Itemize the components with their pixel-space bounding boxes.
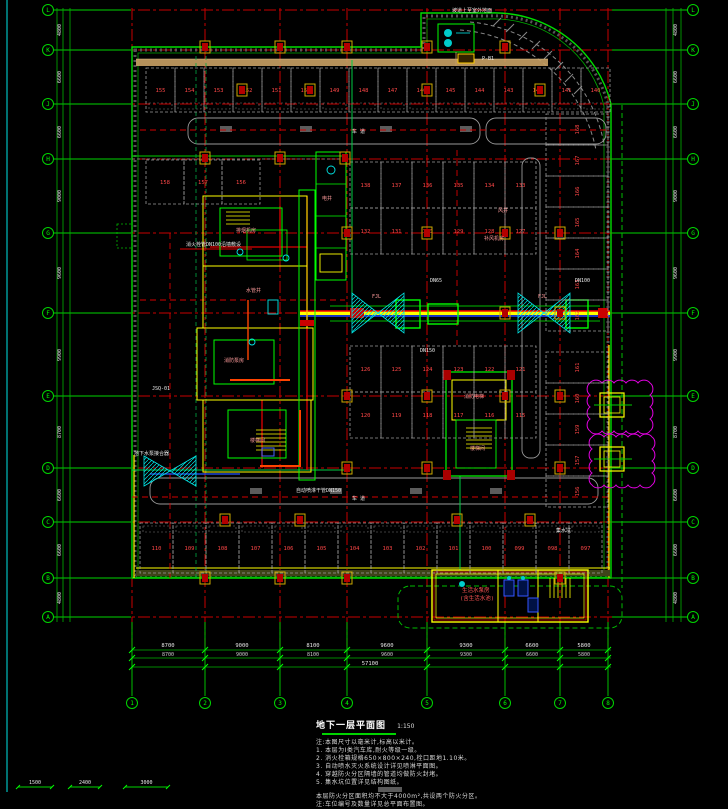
- label-room: FJL: [538, 294, 547, 300]
- column-core: [424, 229, 430, 237]
- grid-bubble-label: E: [46, 393, 50, 400]
- dim-text-side-right: 6600: [673, 71, 679, 83]
- notes-list: 注:本图尺寸以毫米计,标高以米计。1. 本层为Ⅰ类汽车库,耐火等级一级。2. 消…: [316, 739, 576, 787]
- column-core: [557, 229, 563, 237]
- grid-bubble-label: F: [46, 310, 50, 317]
- grid-bubble-label: A: [46, 614, 50, 621]
- column-core: [527, 516, 533, 524]
- column-core: [277, 574, 283, 582]
- parking-stall-number: 157: [198, 180, 208, 186]
- dim-text-bottom: 9000: [235, 643, 248, 649]
- label-room: 电井: [322, 195, 332, 202]
- parking-stall-number: 129: [454, 229, 464, 235]
- dim-text-side-right: 4800: [673, 592, 679, 604]
- parking-stall-number: 106: [284, 546, 294, 552]
- stall-sub-mark: [440, 526, 467, 532]
- dim-text-bottom-sub: 8100: [307, 652, 319, 658]
- grid-bubble-label: D: [46, 465, 50, 472]
- grid-bubble-label: L: [46, 7, 50, 14]
- column-core: [202, 43, 208, 51]
- dim-text-side-right: 8700: [673, 426, 679, 438]
- grid-bubble-label: J: [46, 101, 50, 108]
- corner-dim-text: 2400: [79, 780, 91, 786]
- parking-stall-number: 166: [575, 187, 581, 197]
- column-core: [277, 154, 283, 162]
- grid-bubble-label: B: [691, 575, 695, 582]
- core-right: [443, 370, 515, 480]
- grid-bubble-label: 8: [606, 700, 610, 707]
- label-white: DN100: [575, 278, 590, 284]
- corner-dim-text: 3000: [140, 780, 152, 786]
- dim-text-bottom: 9600: [380, 643, 393, 649]
- parking-stall-number: 158: [160, 180, 170, 186]
- parking-stall-number: 159: [575, 425, 581, 435]
- parking-stall-number: 101: [449, 546, 459, 552]
- label-white: 集水坑: [556, 527, 571, 534]
- label-room: 楼梯间: [470, 445, 485, 452]
- parking-stall-number: 105: [317, 546, 327, 552]
- note-line: 2. 消火栓箱规格650×800×240,栓口距地1.10米。: [316, 755, 576, 763]
- parking-stall-number: 134: [485, 183, 496, 189]
- core-left-fixtures: [237, 249, 289, 345]
- grid-bubble-label: C: [691, 519, 695, 526]
- drawing-scale: 1:150: [397, 723, 414, 730]
- grid-bubble-label: E: [691, 393, 695, 400]
- parking-stall-number: 133: [516, 183, 526, 189]
- column-core: [557, 309, 563, 317]
- column-core: [344, 43, 350, 51]
- parking-stall-number: 127: [516, 229, 526, 235]
- dim-text-side-left: 8700: [57, 426, 63, 438]
- dim-text-bottom: 5800: [577, 643, 590, 649]
- column-core: [424, 43, 430, 51]
- parking-stall-number: 107: [251, 546, 261, 552]
- column-core: [202, 154, 208, 162]
- parking-stall-number: 116: [485, 413, 495, 419]
- note-line-secondary: 本层防火分区面积均不大于4000m²,共设两个防火分区。: [316, 793, 576, 801]
- column-core: [344, 392, 350, 400]
- column-core: [344, 574, 350, 582]
- grid-bubble-label: A: [691, 614, 695, 621]
- label-room: 排烟机房: [236, 227, 256, 234]
- parking-stall-number: 145: [446, 88, 456, 94]
- parking-stall-number: 162: [575, 311, 581, 321]
- parking-stall-number: 147: [388, 88, 398, 94]
- parking-stall-number: 122: [485, 367, 495, 373]
- label-room: 风井: [498, 207, 508, 214]
- label-white: JSQ-01: [152, 386, 170, 392]
- parking-stall-number: 103: [383, 546, 393, 552]
- parking-stall-number: 124: [423, 367, 434, 373]
- column-core: [502, 392, 508, 400]
- parking-stall-number: 148: [359, 88, 369, 94]
- label-white: DN150: [420, 348, 435, 354]
- dim-text-bottom: 8100: [306, 643, 319, 649]
- stall-sub-mark: [308, 526, 335, 532]
- label-room: FJL: [372, 294, 381, 300]
- column-core: [502, 309, 508, 317]
- label-room: 消防电梯: [464, 393, 484, 400]
- dim-text-side-left: 6600: [57, 489, 63, 501]
- dim-text-side-right: 4800: [673, 24, 679, 36]
- core-top-middle: [316, 152, 346, 280]
- column-core: [454, 516, 460, 524]
- parking-stall-number: 149: [330, 88, 340, 94]
- dim-text-side-right: 6600: [673, 126, 679, 138]
- parking-stall-number: 164: [575, 248, 581, 259]
- dim-text-bottom-sub: 9300: [460, 652, 472, 658]
- label-white: 消火栓管DN100沿墙敷设: [186, 241, 241, 248]
- label-white: 坡道上至室外地面: [452, 7, 492, 14]
- parking-stall-number: 123: [454, 367, 464, 373]
- dim-text-side-left: 4800: [57, 592, 63, 604]
- note-line: 4. 穿越防火分区隔墙的管道均做防火封堵。: [316, 771, 576, 779]
- column-core: [297, 516, 303, 524]
- parking-stall-number: 132: [361, 229, 371, 235]
- grid-bubble-label: G: [46, 230, 50, 237]
- grid-bubble-label: K: [46, 47, 50, 54]
- parking-stall-number: 131: [392, 229, 402, 235]
- column-core: [307, 86, 313, 94]
- note-line: 5. 集水坑位置详见结构图纸。: [316, 779, 576, 787]
- parking-stall-number: 140: [591, 88, 601, 94]
- grid-bubble-label: J: [691, 101, 695, 108]
- parking-stall-number: 099: [515, 546, 525, 552]
- dim-text-side-right: 6600: [673, 489, 679, 501]
- column-core: [424, 86, 430, 94]
- grid-bubble-label: 1: [130, 700, 134, 707]
- grid-bubble-label: K: [691, 47, 695, 54]
- column-core: [344, 229, 350, 237]
- dim-text-bottom-sub: 9000: [236, 652, 248, 658]
- grid-bubble-label: G: [691, 230, 695, 237]
- grid-bubble-label: C: [46, 519, 50, 526]
- note-line: 注:本图尺寸以毫米计,标高以米计。: [316, 739, 576, 747]
- parking-stall-number: 097: [581, 546, 591, 552]
- note-line: 1. 本层为Ⅰ类汽车库,耐火等级一级。: [316, 747, 576, 755]
- label-annex: (含生活水池): [460, 594, 494, 602]
- parking-stall-number: 115: [516, 413, 526, 419]
- grid-bubble-label: 5: [425, 700, 429, 707]
- column-core: [277, 43, 283, 51]
- parking-stall-number: 156: [236, 180, 246, 186]
- dim-text-bottom-sub: 9600: [381, 652, 393, 658]
- note-line: 3. 自动喷水灭火系统设计详见喷淋平面图。: [316, 763, 576, 771]
- parking-stall-number: 109: [185, 546, 195, 552]
- column-core: [342, 154, 348, 162]
- stall-sub-mark: [473, 526, 500, 532]
- parking-stall-number: 154: [185, 88, 196, 94]
- column-core: [557, 392, 563, 400]
- stall-sub-mark: [407, 526, 434, 532]
- label-white: DN65: [430, 278, 442, 284]
- parking-stall-number: 100: [482, 546, 492, 552]
- grid-layer: LLKKJJHHGGFFEEDDCCBBAA12345678: [43, 5, 699, 709]
- label-annex: 生活水泵房: [462, 586, 490, 594]
- dim-text-side-left: 9900: [57, 349, 63, 361]
- dim-text-side-right: 6600: [673, 544, 679, 556]
- stall-sub-mark: [506, 526, 533, 532]
- dim-text-side-left: 4800: [57, 24, 63, 36]
- label-white: 车 道: [352, 495, 365, 502]
- parking-stall-number: 118: [423, 413, 433, 419]
- parking-stall-number: 143: [504, 88, 514, 94]
- grid-bubble-label: 3: [278, 700, 282, 707]
- parking-stall-number: 135: [454, 183, 464, 189]
- column-core: [202, 574, 208, 582]
- dim-text-bottom-sub: 6600: [526, 652, 538, 658]
- stall-sub-mark: [275, 526, 302, 532]
- dim-text-side-right: 9900: [673, 349, 679, 361]
- parking-stall-number: 128: [485, 229, 495, 235]
- parking-stall-number: 121: [516, 367, 526, 373]
- parking-stall-number: 153: [214, 88, 224, 94]
- dim-text-bottom-sub: 8700: [162, 652, 174, 658]
- stall-sub-mark: [572, 526, 599, 532]
- dim-text-side-left: 6600: [57, 126, 63, 138]
- column-core: [239, 86, 245, 94]
- label-room: 水管井: [246, 287, 261, 294]
- dim-text-bottom: 8700: [161, 643, 174, 649]
- column-core: [424, 464, 430, 472]
- parking-stall-number: 119: [392, 413, 402, 419]
- parking-stall-number: 110: [152, 546, 162, 552]
- stall-sub-mark: [374, 526, 401, 532]
- dim-text-side-left: 6600: [57, 71, 63, 83]
- label-white: P-B1: [482, 56, 494, 62]
- dim-text-bottom-sub: 5800: [578, 652, 590, 658]
- column-core: [344, 464, 350, 472]
- column-core: [557, 464, 563, 472]
- dim-text-bottom: 6600: [525, 643, 538, 649]
- label-white: 自动喷淋干管DN150: [296, 487, 341, 494]
- parking-stall-number: 102: [416, 546, 426, 552]
- stall-sub-mark: [176, 526, 203, 532]
- parking-stall-number: 156: [575, 487, 581, 497]
- dim-text-total: 57100: [362, 661, 379, 667]
- dim-text-side-right: 9000: [673, 190, 679, 202]
- parking-stall-number: 137: [392, 183, 402, 189]
- parking-stall-number: 160: [575, 394, 581, 404]
- label-room: 补风机房: [484, 235, 504, 242]
- parking-stall-number: 120: [361, 413, 371, 419]
- column-core: [502, 43, 508, 51]
- stall-sub-mark: [209, 526, 236, 532]
- label-room: 消防泵房: [224, 357, 244, 364]
- column-core: [557, 574, 563, 582]
- grid-bubble-label: 6: [503, 700, 507, 707]
- notes-list-secondary: 本层防火分区面积均不大于4000m²,共设两个防火分区。注:车位编号及数量详见总…: [316, 793, 576, 809]
- grid-bubble-label: D: [691, 465, 695, 472]
- dim-text-side-left: 6600: [57, 544, 63, 556]
- parking-stall-number: 125: [392, 367, 402, 373]
- stall-sub-mark: [242, 526, 269, 532]
- parking-stall-number: 104: [350, 546, 361, 552]
- drawing-title: 地下一层平面图: [316, 721, 386, 731]
- grid-bubble-label: H: [46, 156, 50, 163]
- grid-bubble-label: B: [46, 575, 50, 582]
- label-room: 楼梯间: [250, 437, 265, 444]
- parking-stall-number: 098: [548, 546, 558, 552]
- grid-bubble-label: 2: [203, 700, 207, 707]
- parking-stall-number: 151: [272, 88, 282, 94]
- parking-stall-number: 155: [156, 88, 166, 94]
- parking-stall-number: 157: [575, 456, 581, 466]
- column-core: [537, 86, 543, 94]
- stall-sub-mark: [341, 526, 368, 532]
- note-line-secondary: 注:车位编号及数量详见总平面布置图。: [316, 801, 576, 809]
- parking-stall-number: 168: [575, 125, 581, 135]
- title-underline: [322, 733, 396, 735]
- label-white: 车 道: [352, 128, 365, 135]
- parking-stall-number: 108: [218, 546, 228, 552]
- parking-stall-number: 165: [575, 218, 581, 228]
- parking-stall-number: 136: [423, 183, 433, 189]
- grid-bubble-label: 4: [345, 700, 349, 707]
- parking-stall-number: 141: [562, 88, 572, 94]
- parking-stall-number: 138: [361, 183, 371, 189]
- grid-bubble-label: 7: [558, 700, 562, 707]
- parking-stall-number: 126: [361, 367, 371, 373]
- dim-text-bottom: 9300: [459, 643, 472, 649]
- floor-plan-drawing: LLKKJJHHGGFFEEDDCCBBAA12345678: [0, 0, 728, 792]
- grid-bubble-label: L: [691, 7, 695, 14]
- fire-mains-red: [180, 196, 586, 620]
- dim-text-side-left: 9600: [57, 267, 63, 279]
- label-white: 地下水泵接合器: [134, 450, 169, 457]
- column-core: [222, 516, 228, 524]
- dim-text-side-right: 9600: [673, 267, 679, 279]
- parking-stall-number: 117: [454, 413, 464, 419]
- parking-stall-number: 161: [575, 363, 581, 373]
- title-block: 地下一层平面图 1:150 注:本图尺寸以毫米计,标高以米计。1. 本层为Ⅰ类汽…: [316, 713, 576, 809]
- stall-sub-mark: [143, 526, 170, 532]
- parking-stall-number: 167: [575, 156, 581, 166]
- dim-text-side-left: 9000: [57, 190, 63, 202]
- corner-dim-text: 1500: [29, 780, 41, 786]
- grid-bubble-label: H: [691, 156, 695, 163]
- grid-bubble-label: F: [691, 310, 695, 317]
- parking-stall-number: 144: [475, 88, 486, 94]
- column-core: [424, 392, 430, 400]
